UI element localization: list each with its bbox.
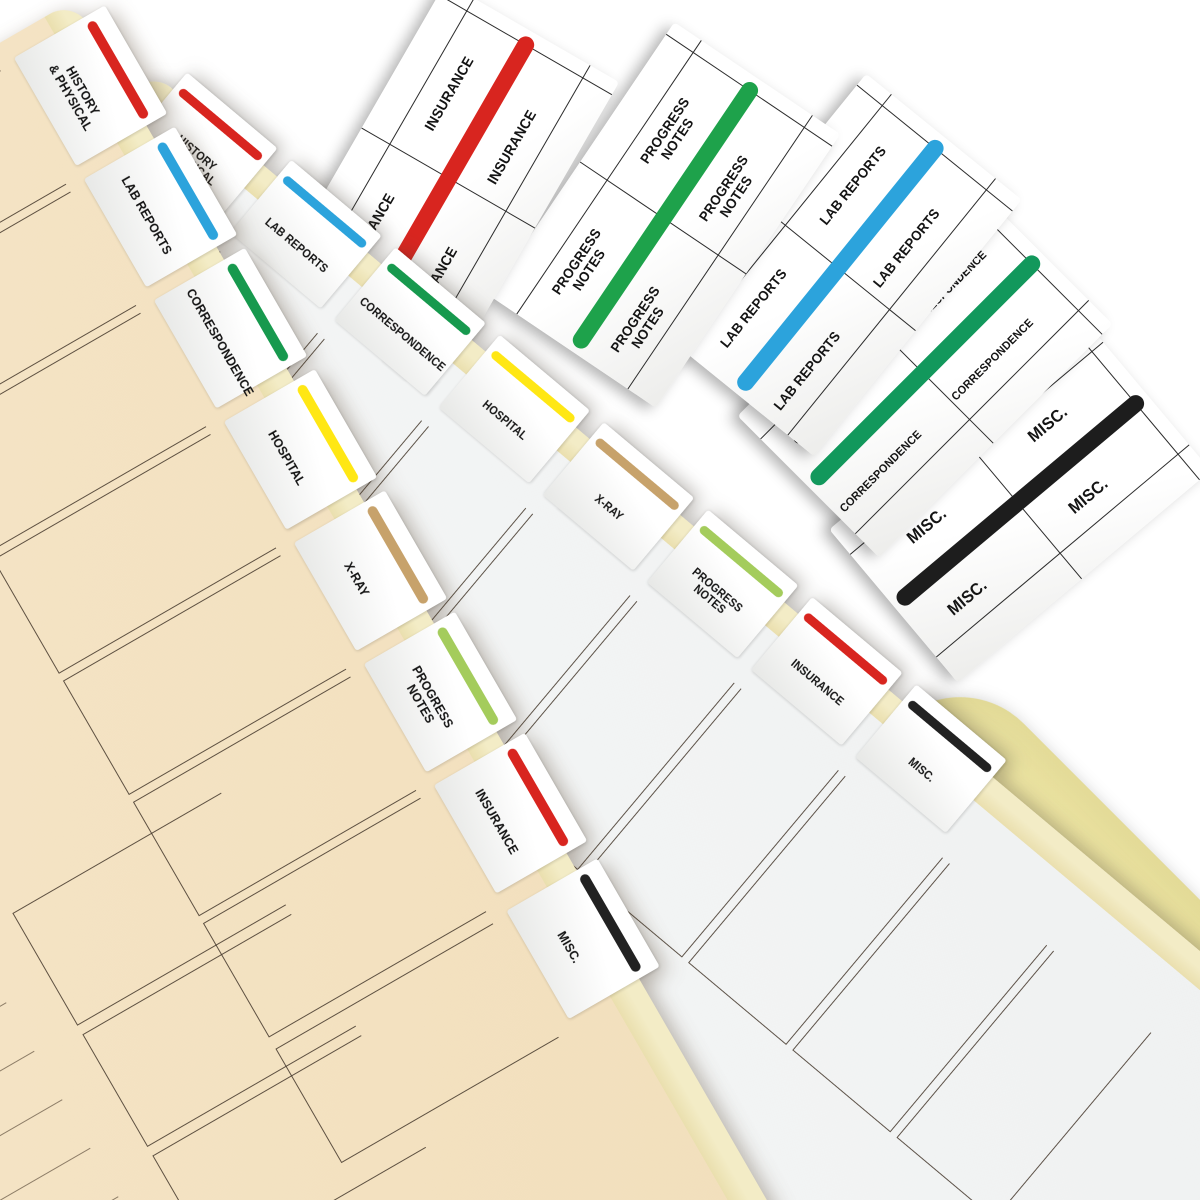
card-label: CORRESPONDENCE xyxy=(827,418,935,526)
card-label: MISC. xyxy=(1029,444,1148,548)
card-label: PROGRESS NOTES xyxy=(619,68,722,201)
card-label: MISC. xyxy=(908,545,1027,649)
card-label: CORRESPONDENCE xyxy=(939,306,1047,414)
card-label: PROGRESS NOTES xyxy=(531,199,634,332)
product-photo-stage: MISC. MISC. MISC. MISC. CORRESPONDENCE C… xyxy=(0,0,1200,1200)
